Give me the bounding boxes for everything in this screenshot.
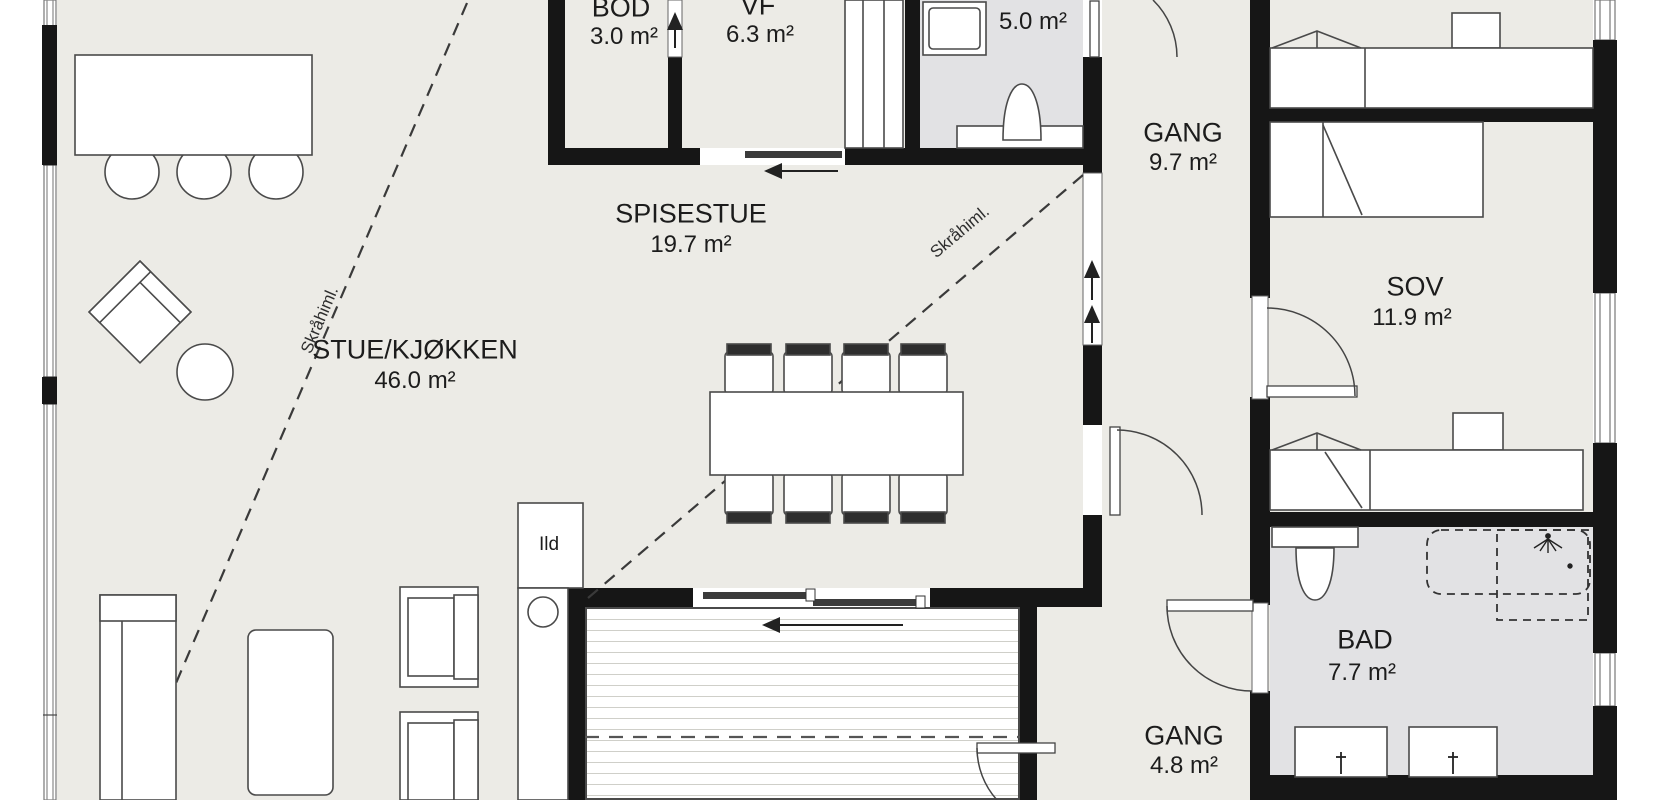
room-area-stue-kjokken: 46.0 m² bbox=[374, 367, 455, 395]
room-area-bad5: 5.0 m² bbox=[999, 8, 1067, 36]
right-window-band bbox=[1595, 0, 1615, 706]
room-label-bad7: BAD bbox=[1337, 625, 1393, 656]
wall-left-pier-2 bbox=[42, 377, 57, 404]
bathroom-large-floor bbox=[1270, 527, 1593, 775]
fireplace-label: Ild bbox=[539, 534, 559, 556]
room-label-gang4: GANG bbox=[1144, 721, 1224, 752]
room-label-vf: VF bbox=[741, 0, 776, 22]
room-area-sov: 11.9 m² bbox=[1372, 304, 1452, 332]
room-area-bad7: 7.7 m² bbox=[1328, 659, 1396, 687]
room-area-gang9: 9.7 m² bbox=[1149, 149, 1217, 177]
wall-right-pier-3 bbox=[1593, 706, 1617, 800]
room-area-bod: 3.0 m² bbox=[590, 23, 658, 51]
room-label-gang9: GANG bbox=[1143, 118, 1223, 149]
room-label-bod: BOD bbox=[592, 0, 651, 24]
terrace-deck bbox=[585, 607, 1020, 800]
floor-plan: STUE/KJØKKEN 46.0 m² SPISESTUE 19.7 m² B… bbox=[0, 0, 1670, 800]
room-label-spisestue: SPISESTUE bbox=[615, 199, 767, 230]
room-area-gang4: 4.8 m² bbox=[1150, 752, 1218, 780]
wall-left-pier-1 bbox=[42, 25, 57, 165]
room-area-vf: 6.3 m² bbox=[726, 21, 794, 49]
room-label-sov: SOV bbox=[1386, 272, 1443, 303]
left-window-band bbox=[43, 0, 57, 800]
wall-right-pier-1 bbox=[1593, 40, 1617, 293]
room-area-spisestue: 19.7 m² bbox=[650, 231, 731, 259]
room-label-stue-kjokken: STUE/KJØKKEN bbox=[312, 335, 518, 366]
wall-right-pier-2 bbox=[1593, 443, 1617, 653]
